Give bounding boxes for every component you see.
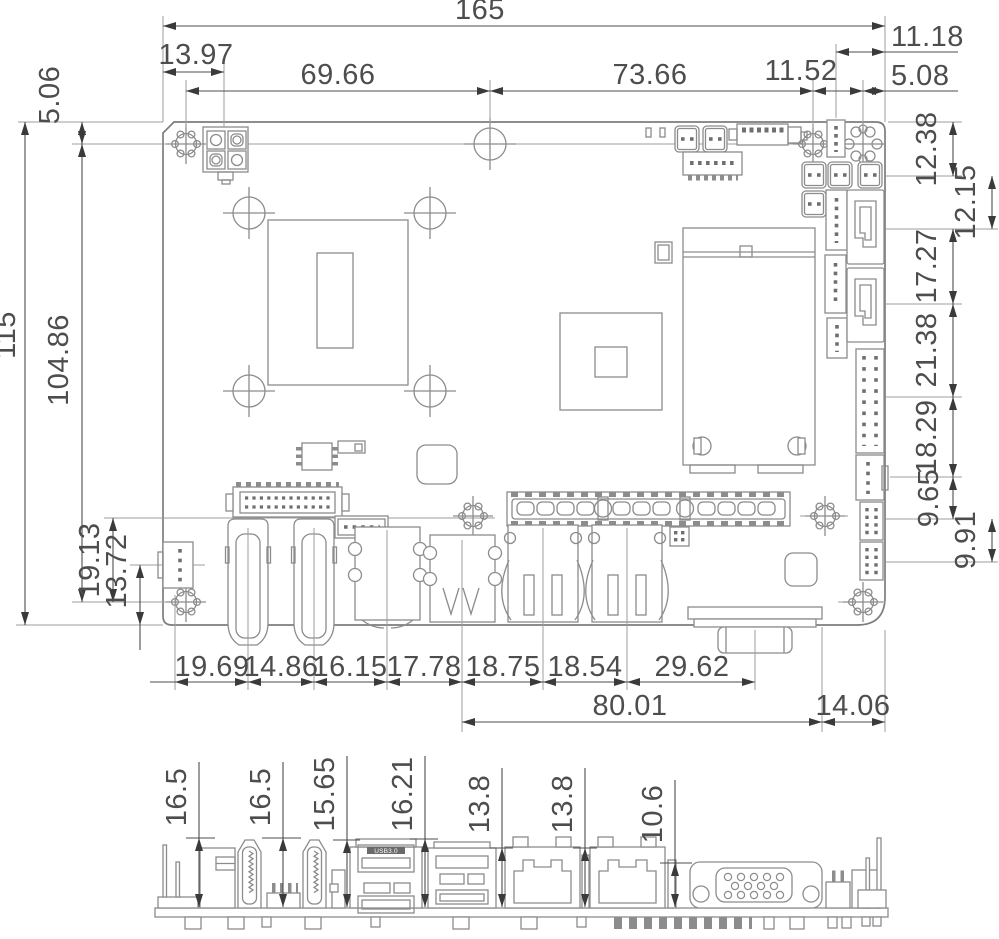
usb3-stack-side: USB3.0 [350,839,422,913]
dim-bottom-2: 16.15 [312,651,387,683]
dim-span-1: 14.06 [815,690,890,722]
dim-overall-width: 165 [455,0,505,26]
mini-pcie-slot [683,228,815,473]
dim-side-5: 13.8 [547,775,579,833]
dim-conn-from-edge: 11.18 [891,21,964,53]
pin-header-2x5-a [860,502,883,540]
lan2-side [590,837,665,908]
dim-right-5: 9.65 [913,469,945,527]
under-board-pins [185,917,881,929]
dim-span-0: 80.01 [592,690,667,722]
side-left-header [158,845,198,908]
dim-bottom-0: 19.69 [174,651,249,683]
dim-side-0: 16.5 [161,768,193,826]
dim-bottom-5: 18.54 [547,651,622,683]
conn-4pin-left [158,542,193,588]
dim-side-3: 16.21 [387,756,419,831]
dim-right-4: 18.29 [911,399,943,474]
dim-bottom-3: 17.78 [386,651,461,683]
dim-hole-span-right: 73.66 [612,59,687,91]
dim-side-4: 13.8 [464,775,496,833]
dim-right-2: 17.27 [911,228,943,303]
dim-right-0: 12.38 [911,111,943,186]
drawing-canvas: 165 11.18 13.97 69.66 73.66 11.52 5.08 5… [0,0,999,939]
conn-4pin-right [856,455,888,500]
dim-hole-pair-gap: 11.52 [765,55,838,87]
side-box-connector [200,848,235,908]
box-header-2x13 [226,485,349,518]
dim-overall-height: 115 [0,311,22,359]
dim-conn-row-y: 13.72 [101,533,133,608]
hdmi2-side [303,840,326,908]
dim-side-2: 15.65 [309,756,341,831]
dim-hole-span-left: 69.66 [300,59,375,91]
board-dimension-drawing: 165 11.18 13.97 69.66 73.66 11.52 5.08 5… [0,0,999,939]
vga-side [690,862,822,908]
dim-bottom-4: 18.75 [465,651,540,683]
hdmi1-side [238,840,261,908]
dim-right-1: 12.15 [950,164,982,239]
usb3-label: USB3.0 [374,848,398,855]
lan1-side [505,837,580,908]
dim-bottom-1: 14.86 [243,651,318,683]
pin-header-2x10 [856,349,884,453]
sata-connector-2 [847,268,884,342]
side-right-headers [826,838,886,908]
dim-side-6: 10.6 [637,785,669,843]
usb2-stack-side [428,842,496,908]
pcb-bar [155,908,888,917]
block-2x2 [670,527,689,546]
top-view [72,118,888,653]
dim-hole-to-edge: 5.08 [891,60,949,92]
dim-right-6: 9.91 [950,511,982,569]
pin-header-2x5-b [860,542,883,580]
dim-power-conn-x: 13.97 [158,39,233,71]
dim-bottom-6: 29.62 [654,651,729,683]
side-small-slab [330,870,345,908]
dim-side-1: 16.5 [245,768,277,826]
sata-connector-1 [847,190,884,264]
dim-right-3: 21.38 [911,312,943,387]
dimm-slot [507,492,790,526]
side-view: USB3.0 [155,837,888,929]
dim-top-row-y: 5.06 [34,66,66,124]
dim-hole-span-v: 104.86 [43,314,75,406]
